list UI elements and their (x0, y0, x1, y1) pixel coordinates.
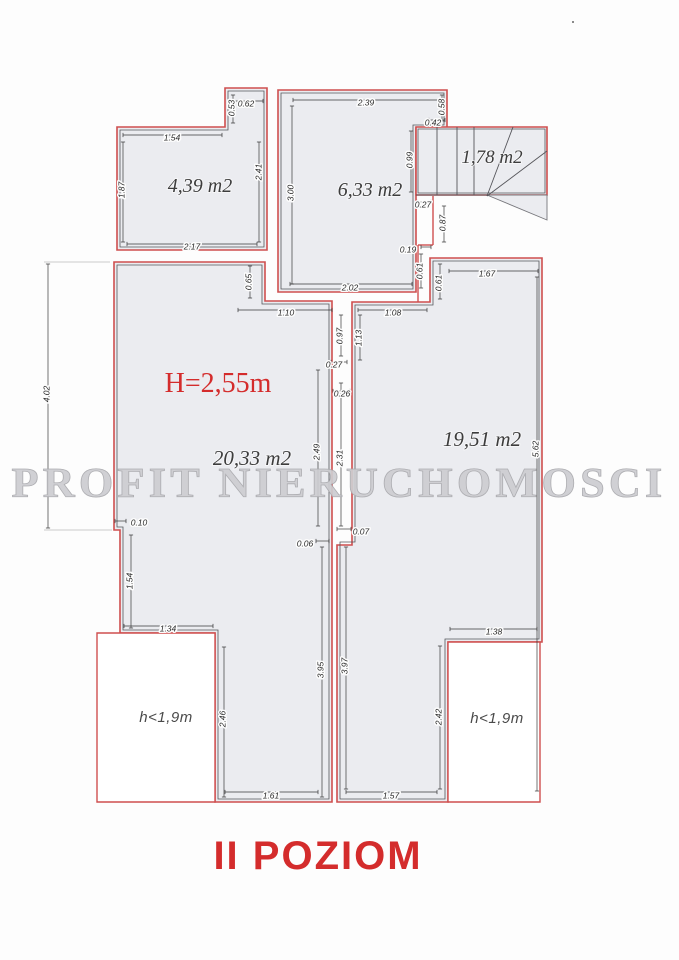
dimension-label: 1.34 (160, 623, 177, 633)
dimension-label: 5.62 (530, 440, 540, 457)
dimension-label: 1.54 (164, 132, 181, 142)
room-main-right-label: 19,51 m2 (443, 427, 522, 451)
dimension-label: 0.27 (326, 359, 343, 369)
staircase-lower-flap (487, 195, 547, 220)
ceiling-height-label: H=2,55m (165, 368, 272, 399)
dimension-label: 0.10 (131, 517, 148, 527)
dimension-label: 1.61 (263, 790, 280, 800)
dimension-label: 1.57 (383, 790, 400, 800)
attic-left-label: h<1,9m (139, 709, 192, 726)
dimension-label: 1.08 (385, 307, 402, 317)
dimension-label: 0.53 (226, 99, 236, 116)
dimension-label: 0.26 (334, 388, 351, 398)
dimension-label: 0.99 (404, 151, 414, 168)
dimension-label: 0.61 (433, 274, 443, 291)
dimension-label: 0.27 (415, 199, 432, 209)
dimension-label: 2.41 (253, 163, 263, 181)
dimension-label: 0.58 (436, 98, 446, 115)
dimension-label: 0.62 (238, 98, 255, 108)
staircase-label: 1,78 m2 (461, 147, 523, 168)
dimension-label: 1.67 (479, 268, 496, 278)
dimension-label: 0.65 (243, 273, 253, 290)
dimension-label: 3.00 (285, 184, 295, 201)
dimension-label: 0.87 (437, 214, 447, 231)
dimension-label: 1.38 (486, 626, 503, 636)
dimension-label: 2.42 (433, 708, 443, 726)
dimension-label: 0.61 (414, 262, 424, 279)
dimension-label: 2.17 (183, 241, 201, 251)
watermark-text: PROFIT NIERUCHOMOSCI (12, 461, 667, 507)
dimension-label: 3.95 (315, 661, 325, 678)
dimension-label: 2.49 (311, 443, 321, 461)
attic-right-label: h<1,9m (470, 710, 523, 727)
dimension-label: 0.06 (297, 538, 314, 548)
page-title: II POZIOM (213, 834, 422, 878)
dimension-label: 1.87 (116, 181, 126, 198)
dimension-label: 2.02 (341, 282, 359, 292)
dimension-label: 0.42 (425, 117, 442, 127)
room-top-left-shape (117, 88, 267, 250)
dimension-label: 2.46 (217, 710, 227, 728)
floor-plan-page: 0.620.531.541.872.412.172.393.000.580.42… (0, 0, 679, 960)
dimension-label: 1.13 (353, 329, 363, 346)
dimension-label: 1.10 (278, 307, 295, 317)
dimension-label: 0.19 (400, 244, 417, 254)
floor-plan-drawing: 0.620.531.541.872.412.172.393.000.580.42… (0, 0, 679, 960)
room-top-left-label: 4,39 m2 (168, 175, 232, 197)
dimension-label: 0.07 (353, 526, 370, 536)
dimension-label: 4.02 (41, 385, 51, 402)
dimension-label: 1.54 (124, 572, 134, 589)
scan-speck (572, 21, 574, 23)
dimension-label: 3.97 (339, 657, 349, 674)
room-top-mid-label: 6,33 m2 (338, 179, 402, 201)
dimension-label: 0.97 (334, 327, 344, 344)
dimension-label: 2.39 (357, 97, 375, 107)
